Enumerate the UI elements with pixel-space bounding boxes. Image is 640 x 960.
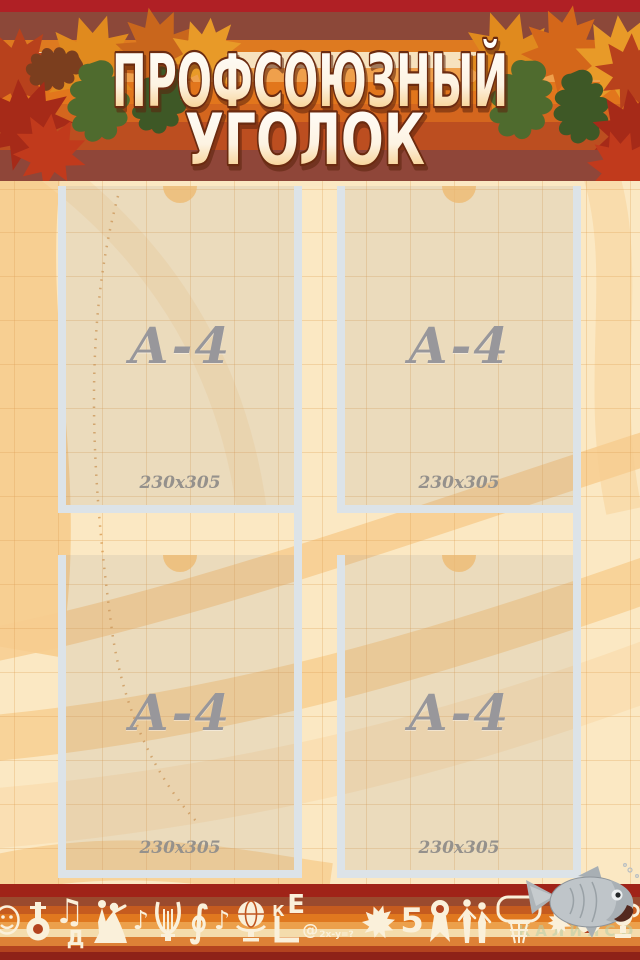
school-easel-icon: К Е @ 2x-y=?: [272, 894, 358, 948]
pocket-film: А-4 230x305: [66, 186, 294, 505]
pocket-size-label: 230x305: [66, 838, 294, 858]
thumb-notch: [442, 555, 476, 572]
a4-pocket-4: А-4 230x305: [337, 555, 581, 878]
pocket-frame-bottom: [58, 505, 302, 513]
pocket-rail-connector: [573, 513, 581, 556]
dancers-icon: [456, 898, 492, 944]
pocket-size-label: 230x305: [66, 473, 294, 493]
page-title-line2: УГОЛОК: [185, 99, 425, 181]
bottom-decor-band: КАЛИПСО ♫ Д: [0, 884, 640, 960]
header-banner: ПРОФСОЮЗНЫЙ УГОЛОК ПРОФСОЮЗНЫЙ УГОЛОК: [0, 0, 640, 181]
pocket-format-label: А-4: [408, 316, 510, 375]
lyre-icon: [152, 899, 184, 943]
pocket-size-label: 230x305: [345, 473, 573, 493]
globe-icon: [233, 898, 269, 944]
music-note-letter: ♫ Д: [54, 895, 84, 947]
treble-clef-icon: ∮: [189, 900, 208, 942]
math-formula: 2x-y=?: [319, 930, 353, 940]
a4-pocket-1: А-4 230x305: [58, 186, 302, 513]
waltz-couple-icon: [87, 898, 129, 944]
pocket-format-label: А-4: [129, 683, 231, 742]
pocket-rail-connector: [294, 513, 302, 556]
a4-pocket-2: А-4 230x305: [337, 186, 581, 513]
thumb-notch: [442, 186, 476, 203]
pocket-frame-right: [573, 555, 581, 878]
pocket-frame-right: [294, 555, 302, 878]
board-body: А-4 230x305 А-4 230x305 А-4 230x305: [0, 181, 640, 884]
pocket-frame-left: [337, 186, 345, 513]
tuba-icon: [25, 900, 51, 942]
pocket-film: А-4 230x305: [345, 555, 573, 870]
pocket-frame-bottom: [337, 505, 581, 513]
maple-leaf-icon: [361, 902, 397, 940]
stand-poster: ПРОФСОЮЗНЫЙ УГОЛОК ПРОФСОЮЗНЫЙ УГОЛОК: [0, 0, 640, 960]
letter-d: Д: [67, 929, 85, 947]
music-note-icon: ♪: [214, 908, 231, 934]
at-sign: @: [302, 920, 318, 939]
music-notes-icon: ♫: [54, 895, 84, 929]
header-decoration: ПРОФСОЮЗНЫЙ УГОЛОК ПРОФСОЮЗНЫЙ УГОЛОК: [0, 0, 640, 181]
pocket-format-label: А-4: [129, 316, 231, 375]
pocket-frame-left: [337, 555, 345, 878]
pocket-frame-left: [58, 186, 66, 513]
award-ribbon-icon: [427, 898, 453, 944]
pocket-size-label: 230x305: [345, 838, 573, 858]
pocket-frame-left: [58, 555, 66, 878]
thumb-notch: [163, 555, 197, 572]
number-five: 5: [400, 904, 424, 938]
music-note-icon: ♪: [132, 908, 149, 934]
easel-board-icon: [274, 916, 302, 944]
thumb-notch: [163, 186, 197, 203]
a4-pocket-3: А-4 230x305: [58, 555, 302, 878]
pocket-film: А-4 230x305: [345, 186, 573, 505]
pocket-film: А-4 230x305: [66, 555, 294, 870]
pocket-frame-right: [294, 186, 302, 513]
pocket-frame-bottom: [58, 870, 302, 878]
theater-masks-icon: [0, 904, 22, 938]
pocket-format-label: А-4: [408, 683, 510, 742]
pocket-frame-right: [573, 186, 581, 513]
fish-watermark-icon: [526, 860, 640, 940]
